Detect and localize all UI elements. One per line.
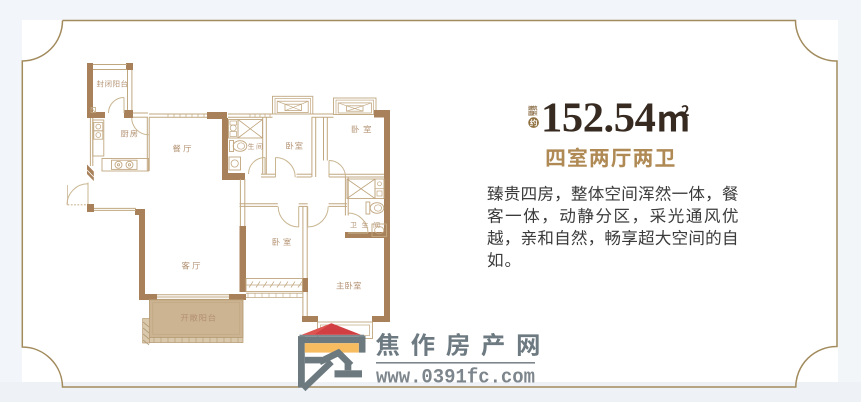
svg-text:www.0391fc.com: www.0391fc.com [376,367,535,390]
svg-text:152.54: 152.54 [541,95,656,142]
